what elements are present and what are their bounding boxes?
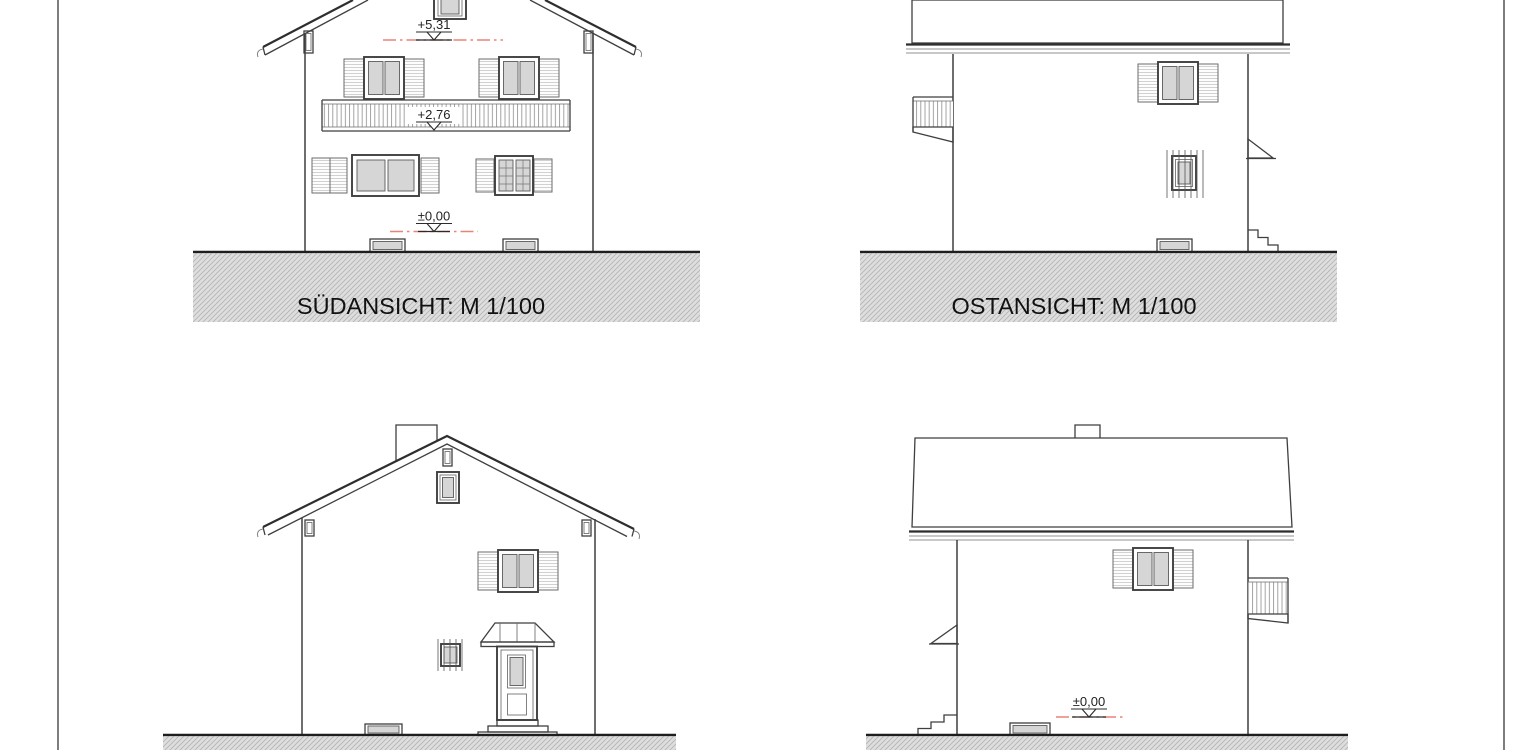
balcony-south: +2,76 <box>322 100 570 131</box>
roof-rake-left <box>263 0 353 47</box>
roof-eave-cap-right <box>634 47 636 55</box>
roof-west <box>909 438 1294 540</box>
rafter-end-right <box>584 31 593 53</box>
elevations-svg: +5,31 +2,76 <box>0 0 1526 750</box>
level-text-ridge: +5,31 <box>418 17 451 32</box>
balcony-slab <box>1248 614 1288 623</box>
entrance-canopy-side <box>929 625 959 644</box>
ground-window-left <box>312 155 439 196</box>
attic-window-north <box>437 472 459 503</box>
level-marker-ground-west: ±0,00 <box>1056 694 1124 717</box>
basement-vent <box>1157 239 1192 252</box>
view-west: ±0,00 <box>866 425 1348 750</box>
basement-vent <box>503 239 538 252</box>
roof-panel <box>912 438 1292 527</box>
entrance-steps-side <box>918 715 957 735</box>
ground-hatch-band <box>163 736 676 750</box>
roof-eave-cap-left <box>263 47 265 55</box>
balcony-side <box>913 97 953 142</box>
level-marker-ground-south: ±0,00 <box>390 209 478 232</box>
entrance-canopy <box>481 623 554 647</box>
roof-panel <box>912 0 1283 43</box>
barred-window <box>438 639 462 671</box>
roof-rake-right <box>545 0 636 47</box>
view-north <box>163 425 676 750</box>
basement-vent <box>370 239 405 252</box>
entrance-steps <box>478 720 557 736</box>
upper-window <box>1113 548 1193 590</box>
upper-window-right <box>479 57 559 99</box>
ground-hatch-band <box>866 736 1348 750</box>
balcony-railing <box>1248 582 1288 614</box>
basement-vent <box>1010 723 1050 735</box>
roof-eave-caps <box>263 527 634 537</box>
ground-window-right <box>476 156 552 195</box>
roof-rake-right-inner <box>530 0 634 55</box>
level-text-ground: ±0,00 <box>418 209 450 224</box>
level-symbol <box>416 32 452 40</box>
entrance-canopy-side <box>1246 139 1276 159</box>
barred-window <box>1167 150 1203 198</box>
level-marker-ridge: +5,31 <box>383 17 503 40</box>
level-symbol <box>1071 709 1107 717</box>
view-south: +5,31 +2,76 <box>193 0 700 322</box>
chimney <box>1075 425 1100 438</box>
upper-window <box>478 550 558 592</box>
level-text-balcony: +2,76 <box>418 107 451 122</box>
level-symbol <box>416 224 452 232</box>
basement-vent <box>365 724 402 735</box>
balcony-slab <box>913 127 953 142</box>
ridge-rafter-end <box>443 449 452 466</box>
rafter-end-right <box>582 520 591 536</box>
roof-east <box>906 0 1290 53</box>
upper-window <box>1138 62 1218 104</box>
gutter-hook-right <box>636 49 641 57</box>
roof-rake-left-inner <box>265 0 368 55</box>
balcony-railing <box>914 101 954 127</box>
gutter-hook-left <box>258 49 263 57</box>
caption-south: SÜDANSICHT: M 1/100 <box>297 293 545 319</box>
view-east: OSTANSICHT: M 1/100 <box>860 0 1337 322</box>
level-text-ground: ±0,00 <box>1073 694 1105 709</box>
balcony-side <box>1248 578 1288 623</box>
caption-east: OSTANSICHT: M 1/100 <box>951 293 1196 319</box>
drawing-sheet: +5,31 +2,76 <box>0 0 1526 750</box>
upper-window-left <box>344 57 424 99</box>
entrance-door <box>497 647 537 721</box>
rafter-end-left <box>305 520 314 536</box>
entrance-steps-side <box>1248 230 1278 252</box>
door-glass <box>510 658 523 686</box>
